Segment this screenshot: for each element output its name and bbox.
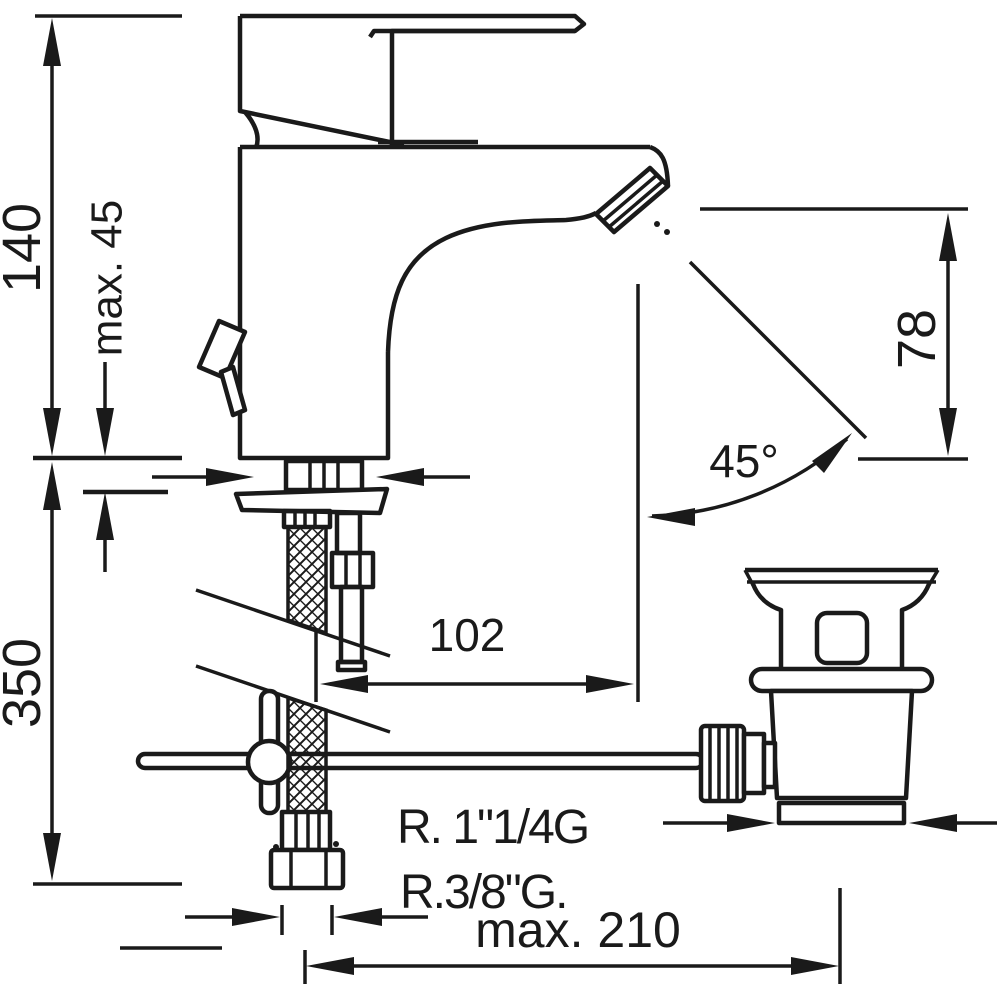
technical-drawing-page: 140 max. 45 350 102 78 bbox=[0, 0, 1000, 1000]
water-drop-dot bbox=[654, 221, 660, 227]
drain-mid-flange bbox=[751, 669, 932, 691]
ferrule-dot bbox=[333, 841, 339, 847]
drain-collar bbox=[744, 734, 764, 793]
horizontal-rod bbox=[138, 754, 703, 768]
hose-ferrule bbox=[282, 812, 330, 850]
hose-end-nut bbox=[271, 850, 343, 888]
faucet-dimension-drawing: 140 max. 45 350 102 78 bbox=[0, 0, 1000, 1000]
dim-label-78: 78 bbox=[887, 309, 947, 369]
dim-label-max45: max. 45 bbox=[83, 200, 132, 357]
drain-lower-body bbox=[771, 691, 912, 798]
drain-tailpiece bbox=[779, 803, 904, 823]
drain-thread-label: R. 1"1/4G bbox=[397, 801, 588, 854]
dim-label-140: 140 bbox=[0, 203, 52, 293]
hose-lower-segment bbox=[288, 698, 326, 812]
water-drop-dot bbox=[664, 229, 670, 235]
angle-label-45: 45° bbox=[709, 435, 779, 487]
dim-label-102: 102 bbox=[429, 609, 506, 661]
dim-label-350: 350 bbox=[0, 638, 52, 728]
rod-ball-joint bbox=[248, 741, 290, 783]
dim-label-max210: max. 210 bbox=[475, 902, 681, 958]
drain-neck bbox=[764, 743, 775, 787]
hose-upper-segment bbox=[288, 527, 326, 633]
